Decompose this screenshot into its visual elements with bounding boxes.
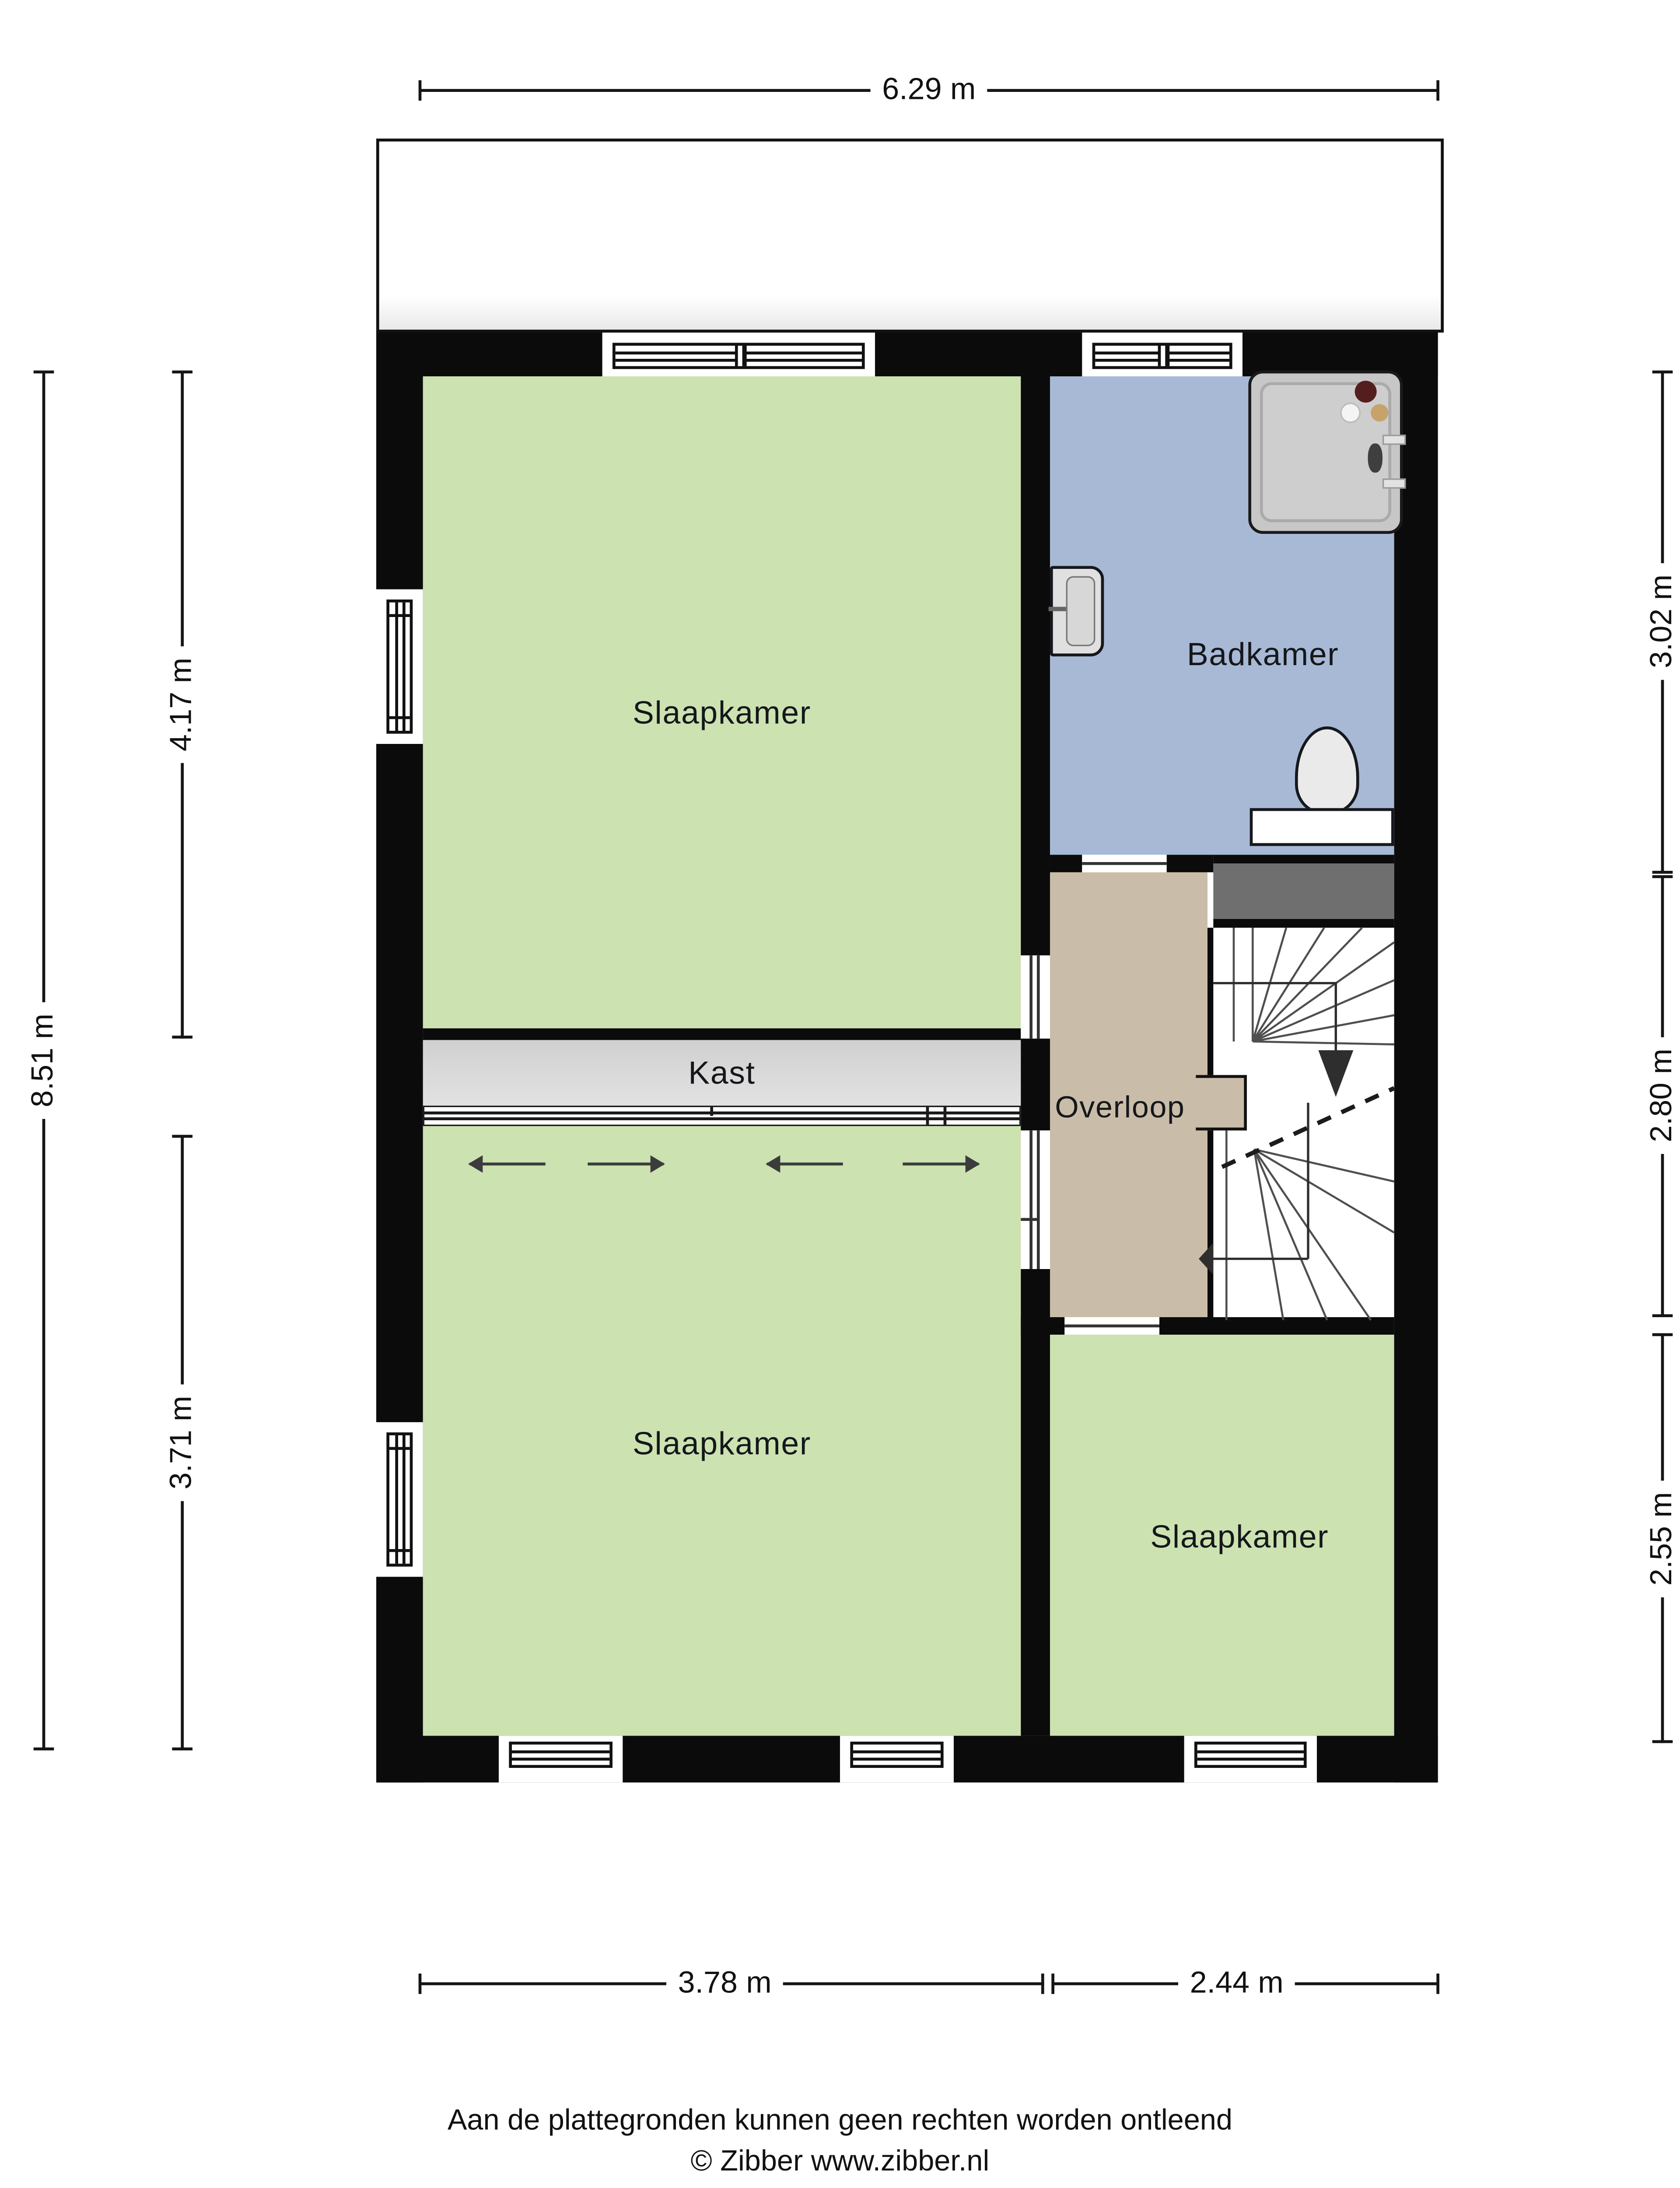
window-glyph-icon [386, 600, 413, 734]
dim-right-upper-label: 3.02 m [1645, 563, 1680, 680]
closet-sliding-track [423, 1106, 1021, 1126]
bathroom-bottom-wall-b [1167, 855, 1214, 872]
window-glyph-icon [386, 1432, 413, 1567]
door-bedroom-bottom-landing [1021, 1130, 1050, 1269]
dim-bottom-right-label: 2.44 m [1178, 1966, 1295, 2001]
footer-copyright: © Zibber www.zibber.nl [0, 2146, 1680, 2179]
floor-plan-canvas: Slaapkamer Badkamer Kast Overloop Slaapk… [0, 0, 1680, 2188]
window-glyph-icon [1092, 343, 1232, 369]
window-glyph-icon [850, 1742, 943, 1768]
slide-arrow-right-icon [588, 1154, 663, 1175]
dim-right-middle-label: 2.80 m [1645, 1037, 1680, 1154]
stair-down-arrow-icon [1318, 1050, 1353, 1097]
label-closet: Kast [423, 1055, 1021, 1093]
label-landing: Overloop [1029, 1091, 1210, 1126]
window-glyph-icon [509, 1742, 612, 1768]
outer-wall-top [376, 333, 1438, 376]
dim-top-label: 6.29 m [871, 73, 987, 108]
label-bedroom-bottom: Slaapkamer [423, 1425, 1021, 1463]
window-top-bedroom [602, 333, 875, 376]
window-left-upper [376, 589, 423, 744]
door-bathroom [1082, 855, 1166, 872]
sink [1050, 566, 1104, 656]
shower-tray [1248, 371, 1403, 534]
inner-wall-vertical-a [1021, 376, 1050, 955]
closet-top-wall [423, 1028, 1021, 1040]
stair-exit-arrow-icon [1199, 1243, 1213, 1275]
dim-left-lower-label: 3.71 m [165, 1384, 200, 1501]
footer-disclaimer: Aan de plattegronden kunnen geen rechten… [0, 2105, 1680, 2139]
dim-right-lower-label: 2.55 m [1645, 1480, 1680, 1597]
stair-top-wall-thin [1213, 855, 1394, 863]
window-bottom-left [499, 1736, 623, 1783]
landing-bottom-wall-a [1021, 1317, 1064, 1335]
dim-bottom-left-label: 3.78 m [666, 1966, 783, 2001]
window-top-bathroom [1082, 333, 1242, 376]
dim-left-upper-label: 4.17 m [165, 646, 200, 763]
slide-arrow-right2-icon [903, 1154, 978, 1175]
dim-left-total-label: 8.51 m [26, 1002, 61, 1119]
stair-duct [1213, 863, 1394, 919]
window-left-lower [376, 1422, 423, 1577]
inner-wall-bedroom-divider [1021, 1335, 1050, 1736]
slide-arrow-left2-icon [767, 1154, 843, 1175]
window-bottom-right [1184, 1736, 1317, 1783]
window-bottom-middle [840, 1736, 954, 1783]
label-bedroom-top: Slaapkamer [423, 694, 1021, 733]
label-bathroom: Badkamer [1102, 636, 1423, 674]
roof-outline [376, 139, 1444, 333]
bathroom-bottom-wall-a [1050, 855, 1082, 872]
window-glyph-icon [1194, 1742, 1307, 1768]
door-bedroom-top-landing [1021, 955, 1050, 1038]
window-glyph-icon [612, 343, 865, 369]
slide-arrow-left-icon [469, 1154, 545, 1175]
door-bedroom-right [1064, 1317, 1159, 1335]
label-bedroom-right: Slaapkamer [1067, 1518, 1412, 1557]
